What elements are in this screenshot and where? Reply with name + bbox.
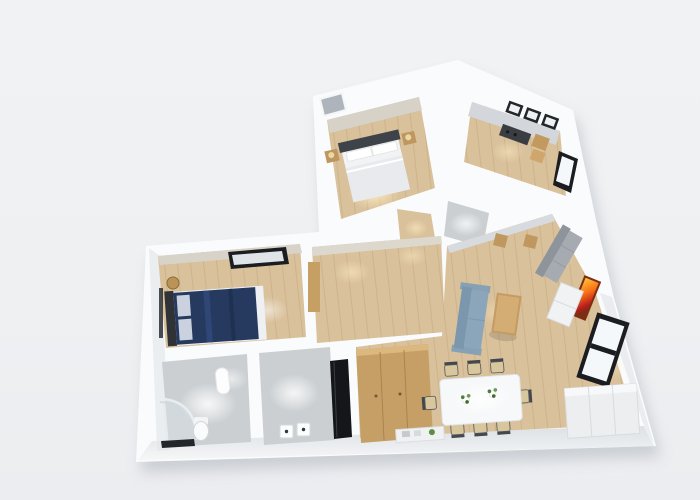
floorplan-render: [0, 0, 700, 500]
hallway-light: [397, 246, 427, 266]
corridor-light: [404, 219, 428, 237]
toilet: [194, 422, 209, 441]
open-door: [215, 367, 231, 394]
utility-light: [269, 374, 319, 412]
small-bathroom-light: [449, 212, 483, 236]
floorplan-stage: [0, 0, 700, 500]
hall-wardrobe: [308, 262, 320, 312]
double-bed-navy: [164, 285, 267, 347]
room-bedroom-blue: [158, 244, 306, 348]
pillow: [177, 295, 191, 317]
pillow: [178, 319, 192, 341]
kitchen-light: [492, 141, 524, 163]
kitchenette-counter: [396, 426, 445, 442]
room-bathroom: [160, 354, 251, 448]
pendant-lamp: [167, 277, 179, 289]
sideboard: [564, 384, 639, 439]
hallway-light: [334, 260, 370, 284]
room-hallway: [308, 236, 445, 343]
glass-partition: [159, 288, 163, 338]
room-utility: [259, 347, 352, 445]
